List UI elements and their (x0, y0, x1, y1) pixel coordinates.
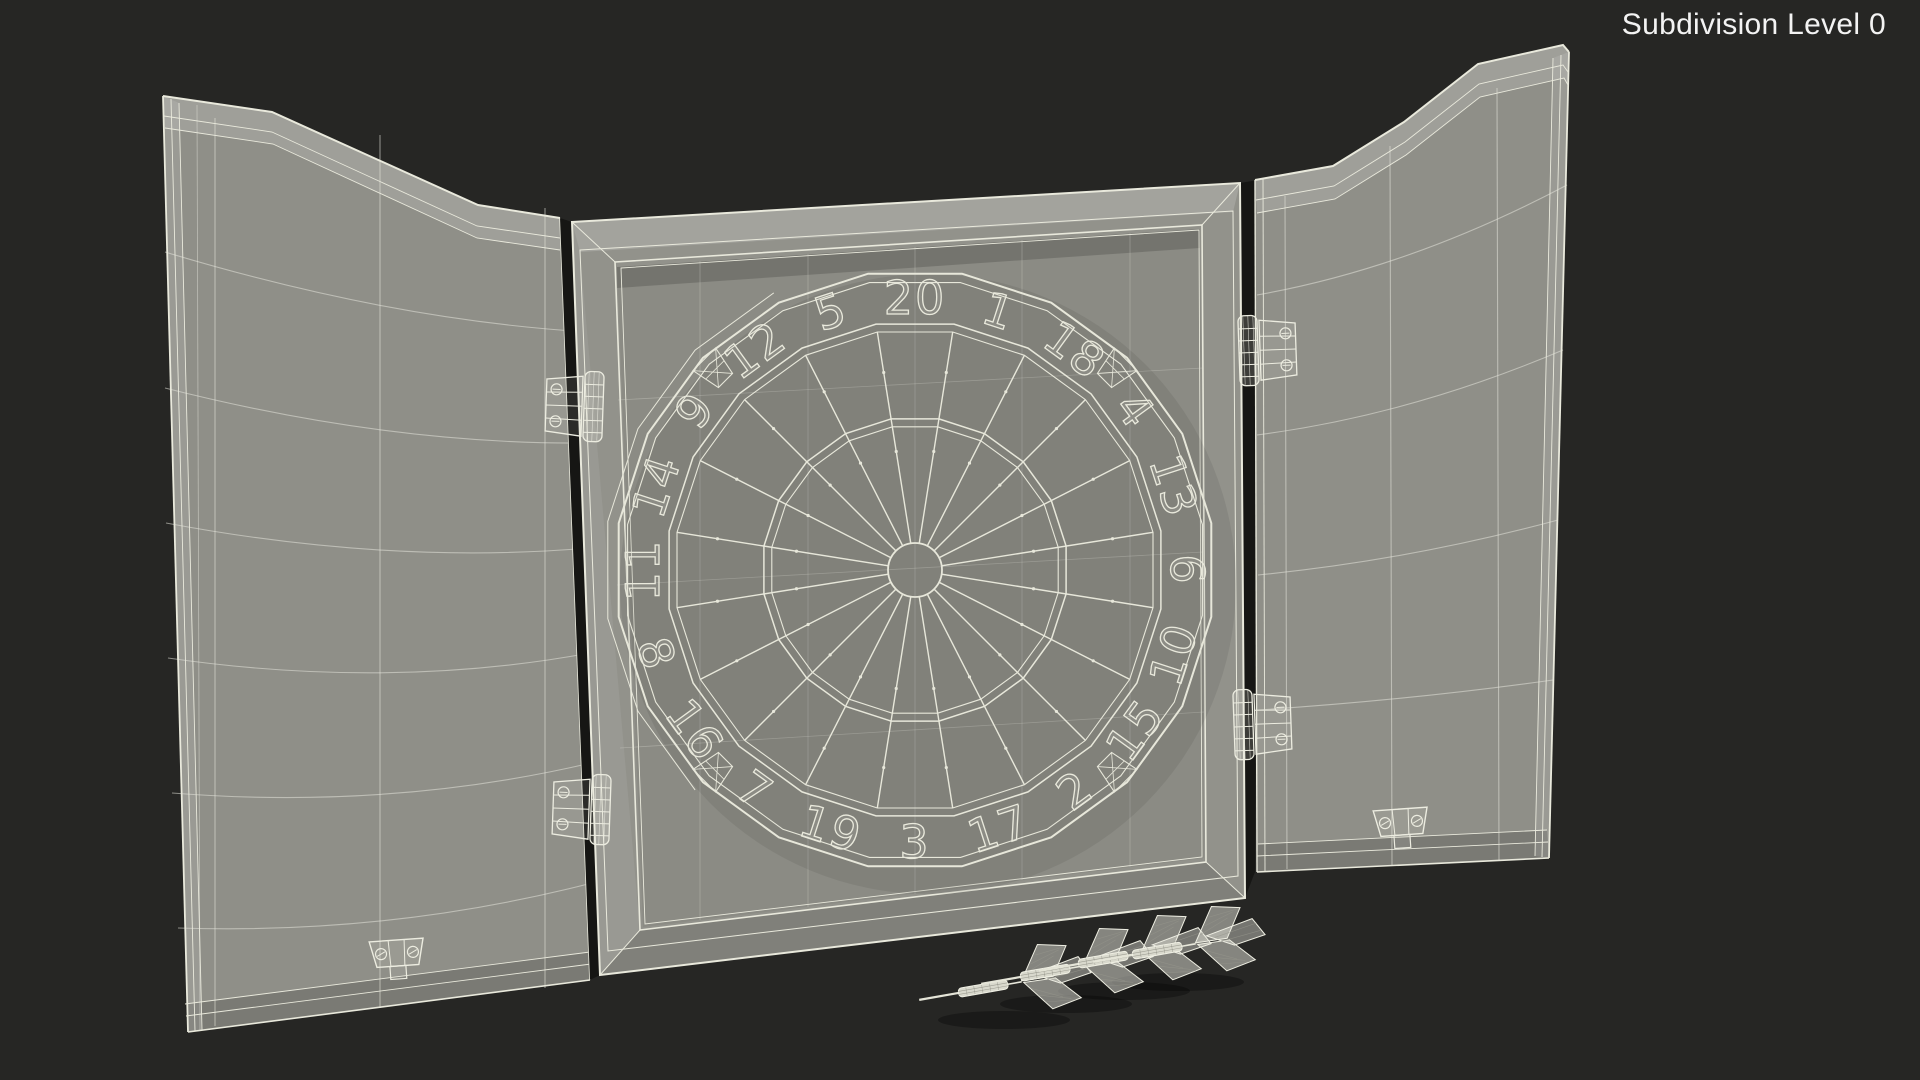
cabinet-right-door (1255, 45, 1569, 872)
cabinet-body: 2011841361015217319716811149125 (560, 180, 1258, 980)
hinge (1233, 688, 1292, 760)
viewport-3d[interactable]: 2011841361015217319716811149125 Subdivis… (0, 0, 1920, 1080)
hinge (1238, 314, 1297, 386)
cabinet-left-door (163, 96, 592, 1032)
dartboard-number: 6 (1160, 554, 1214, 585)
subdivision-level-label: Subdivision Level 0 (1622, 8, 1886, 42)
wireframe-render-canvas[interactable]: 2011841361015217319716811149125 (0, 0, 1920, 1080)
hinge (552, 773, 611, 845)
dartboard-number: 20 (884, 271, 947, 325)
right-door-panel (1255, 45, 1569, 872)
hinge (545, 370, 604, 442)
dartboard-number: 3 (899, 815, 930, 869)
dart-shadows (938, 973, 1244, 1029)
dartboard-number: 11 (616, 539, 670, 602)
